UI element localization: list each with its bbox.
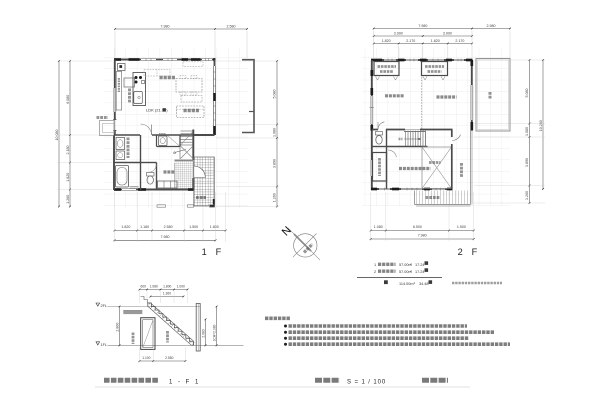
- svg-text:1.500: 1.500: [457, 225, 466, 229]
- svg-text:10.280: 10.280: [539, 120, 543, 131]
- svg-text:5.080: 5.080: [273, 89, 277, 98]
- svg-text:34.48: 34.48: [419, 282, 429, 286]
- svg-text:3.890: 3.890: [273, 159, 277, 168]
- svg-text:17.24: 17.24: [415, 270, 425, 274]
- svg-text:1.260: 1.260: [273, 193, 277, 202]
- svg-text:7.980: 7.980: [418, 24, 427, 28]
- svg-text:1CH=2.380: 1CH=2.380: [212, 324, 216, 341]
- svg-text:1.080: 1.080: [374, 225, 383, 229]
- svg-text:2FL: 2FL: [101, 304, 108, 308]
- svg-text:7.980: 7.980: [161, 24, 170, 28]
- svg-text:1.800: 1.800: [163, 284, 171, 288]
- svg-text:1.820: 1.820: [382, 39, 391, 43]
- svg-text:1: 1: [374, 263, 376, 267]
- svg-text:1.260: 1.260: [525, 191, 529, 200]
- svg-text:1.080: 1.080: [273, 128, 277, 137]
- svg-text:1.360: 1.360: [163, 291, 171, 295]
- svg-text:2.980: 2.980: [487, 24, 496, 28]
- svg-text:1.800: 1.800: [210, 225, 219, 229]
- svg-text:2.580: 2.580: [165, 356, 173, 360]
- svg-text:1 - F 1: 1 - F 1: [169, 380, 200, 386]
- svg-text:2.580: 2.580: [227, 24, 236, 28]
- svg-text:6.500: 6.500: [413, 225, 422, 229]
- svg-text:17.24: 17.24: [415, 263, 425, 267]
- svg-text:7.980: 7.980: [161, 235, 170, 239]
- svg-text:LDK (21.1: LDK (21.1: [146, 108, 165, 113]
- svg-text:1.080: 1.080: [150, 284, 158, 288]
- svg-text:1.080: 1.080: [525, 127, 529, 136]
- svg-text:2.080: 2.080: [201, 329, 205, 337]
- svg-text:2.170: 2.170: [455, 39, 464, 43]
- svg-text:2 F: 2 F: [458, 247, 481, 257]
- svg-text:2.170: 2.170: [406, 39, 415, 43]
- svg-text:7.980: 7.980: [418, 234, 427, 238]
- svg-text:3.890: 3.890: [525, 158, 529, 167]
- svg-text:1.180: 1.180: [140, 225, 149, 229]
- svg-text:114.00m: 114.00m: [399, 282, 414, 286]
- svg-text:6.080: 6.080: [66, 95, 70, 104]
- svg-text:1.820: 1.820: [121, 225, 130, 229]
- svg-text:1.820: 1.820: [66, 173, 70, 182]
- svg-text:1.100: 1.100: [142, 356, 150, 360]
- svg-text:2.580: 2.580: [164, 225, 173, 229]
- svg-text:2.180: 2.180: [66, 145, 70, 154]
- svg-text:3.990: 3.990: [394, 31, 403, 35]
- svg-text:S = 1 / 100: S = 1 / 100: [347, 380, 386, 386]
- svg-text:3.990: 3.990: [443, 31, 452, 35]
- svg-text:2: 2: [374, 270, 376, 274]
- svg-text:1.500: 1.500: [189, 225, 198, 229]
- svg-text:1.260: 1.260: [66, 195, 70, 204]
- svg-text:1FL: 1FL: [101, 343, 108, 347]
- svg-text:5.080: 5.080: [525, 88, 529, 97]
- svg-text:1 F: 1 F: [202, 247, 225, 257]
- svg-text:1.000: 1.000: [177, 284, 185, 288]
- svg-text:2.800: 2.800: [115, 323, 119, 332]
- svg-text:1.820: 1.820: [431, 39, 440, 43]
- svg-text:600: 600: [140, 284, 146, 288]
